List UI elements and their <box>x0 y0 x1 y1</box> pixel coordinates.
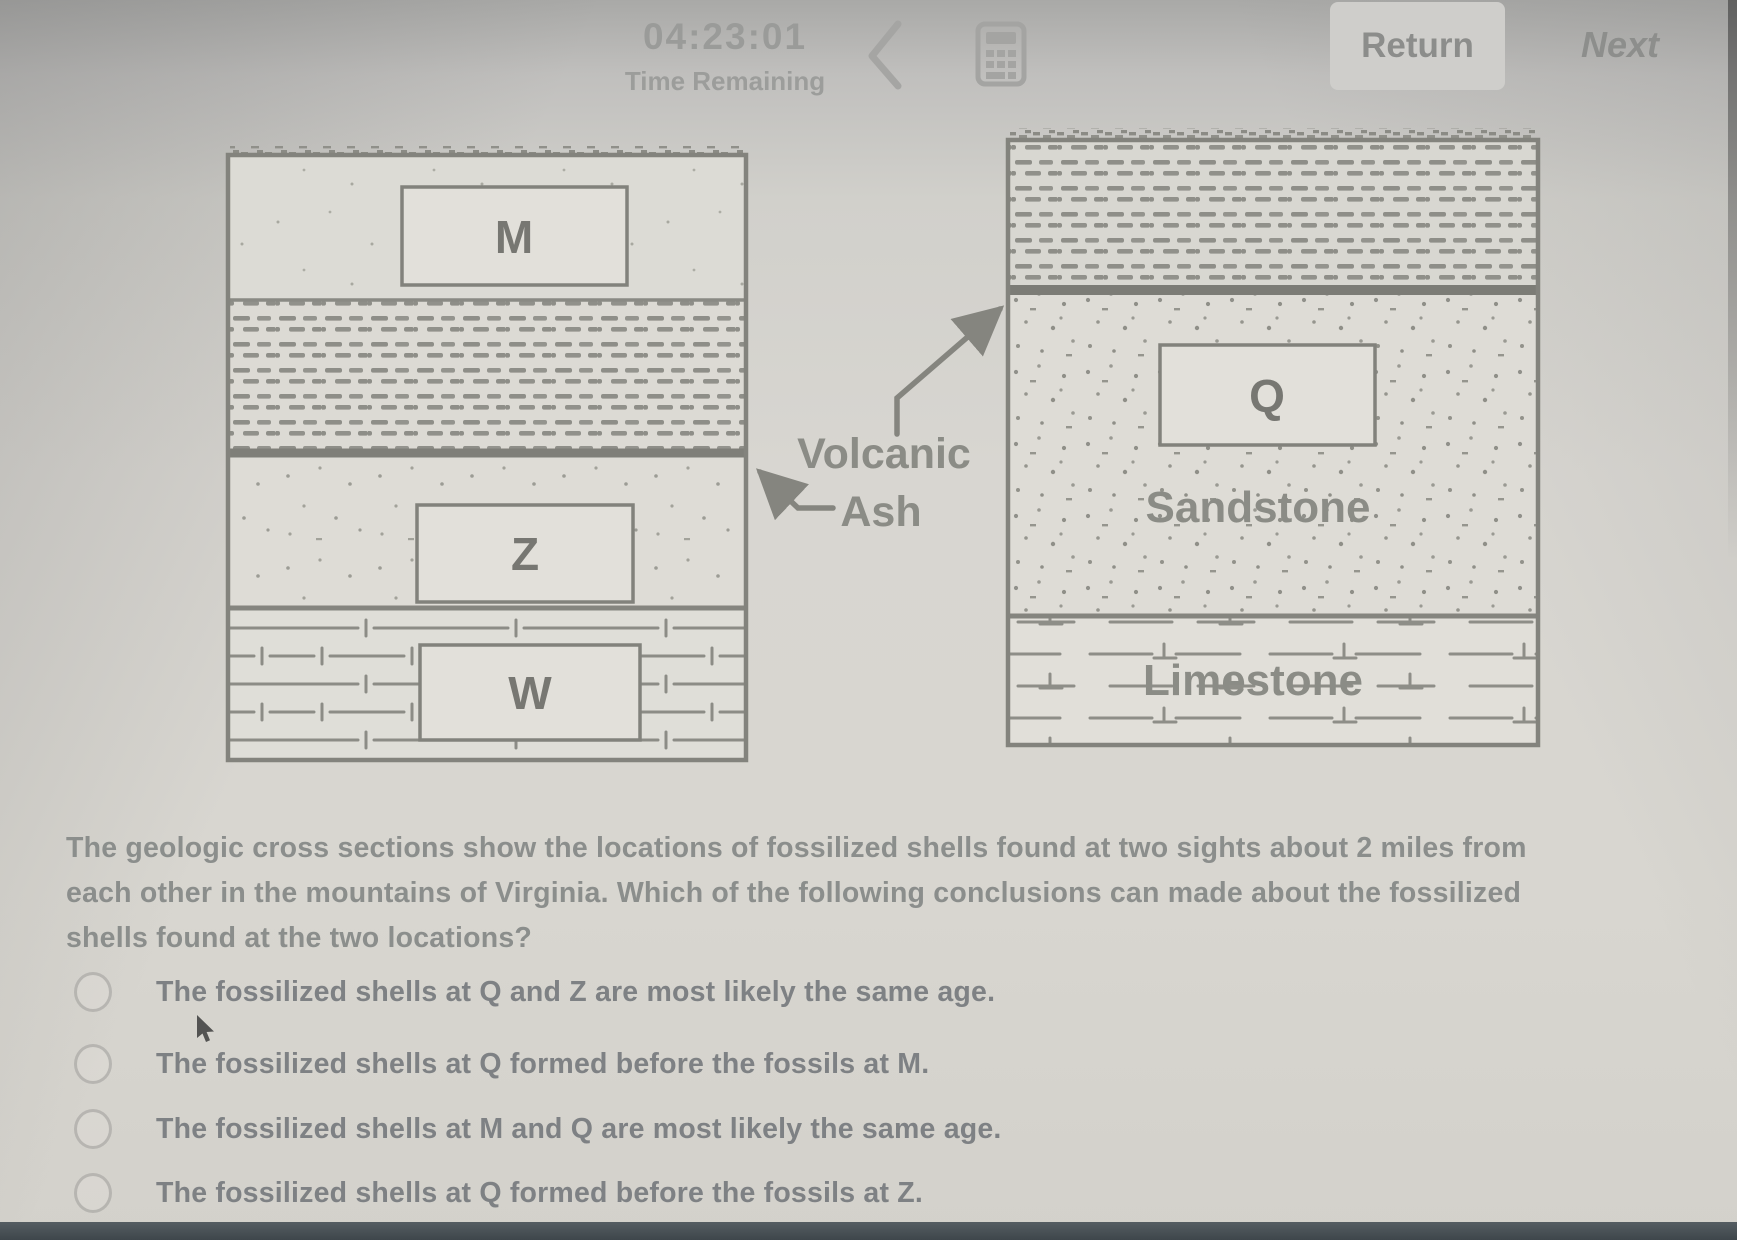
radio-button[interactable] <box>74 1044 112 1084</box>
question-text: The geologic cross sections show the loc… <box>66 826 1561 961</box>
fossil-site-w-label: W <box>508 667 552 719</box>
annotation-arrow-right <box>897 309 1000 434</box>
answer-option-4[interactable]: The fossilized shells at Q formed before… <box>0 1165 1500 1221</box>
right-cross-section: Q Sandstone Limestone <box>1008 128 1538 745</box>
answer-option-4-label: The fossilized shells at Q formed before… <box>156 1177 923 1210</box>
fossil-site-q-label: Q <box>1249 370 1285 422</box>
radio-button[interactable] <box>74 1173 112 1213</box>
answer-option-3-label: The fossilized shells at M and Q are mos… <box>156 1113 1002 1146</box>
fossil-site-z-label: Z <box>511 528 539 580</box>
bottom-screen-bar <box>0 1222 1737 1240</box>
left-cross-section: M Z W <box>228 146 746 760</box>
answer-option-1-label: The fossilized shells at Q and Z are mos… <box>156 976 995 1009</box>
answer-option-1[interactable]: The fossilized shells at Q and Z are mos… <box>0 964 1500 1020</box>
answer-option-2-label: The fossilized shells at Q formed before… <box>156 1048 929 1081</box>
right-ground-surface-texture <box>1010 128 1536 138</box>
answer-option-3[interactable]: The fossilized shells at M and Q are mos… <box>0 1101 1500 1157</box>
figure-svg: M Z W Q Sandstone Limestone Volcanic Ash <box>0 0 1737 800</box>
volcanic-ash-annotation: Volcanic Ash <box>760 309 1000 536</box>
sandstone-layer-label: Sandstone <box>1146 483 1371 532</box>
volcanic-ash-label-line1: Volcanic <box>797 430 971 478</box>
limestone-layer-label: Limestone <box>1143 656 1363 705</box>
fossil-site-m-label: M <box>495 211 533 263</box>
volcanic-ash-label-line2: Ash <box>840 488 921 536</box>
answer-option-2[interactable]: The fossilized shells at Q formed before… <box>0 1036 1500 1092</box>
quiz-screen: { "topbar": { "timer_value": "04:23:01",… <box>0 0 1737 1240</box>
geologic-cross-sections-figure: M Z W Q Sandstone Limestone Volcanic Ash <box>0 0 1737 800</box>
radio-button[interactable] <box>74 1109 112 1149</box>
radio-button[interactable] <box>74 972 112 1012</box>
